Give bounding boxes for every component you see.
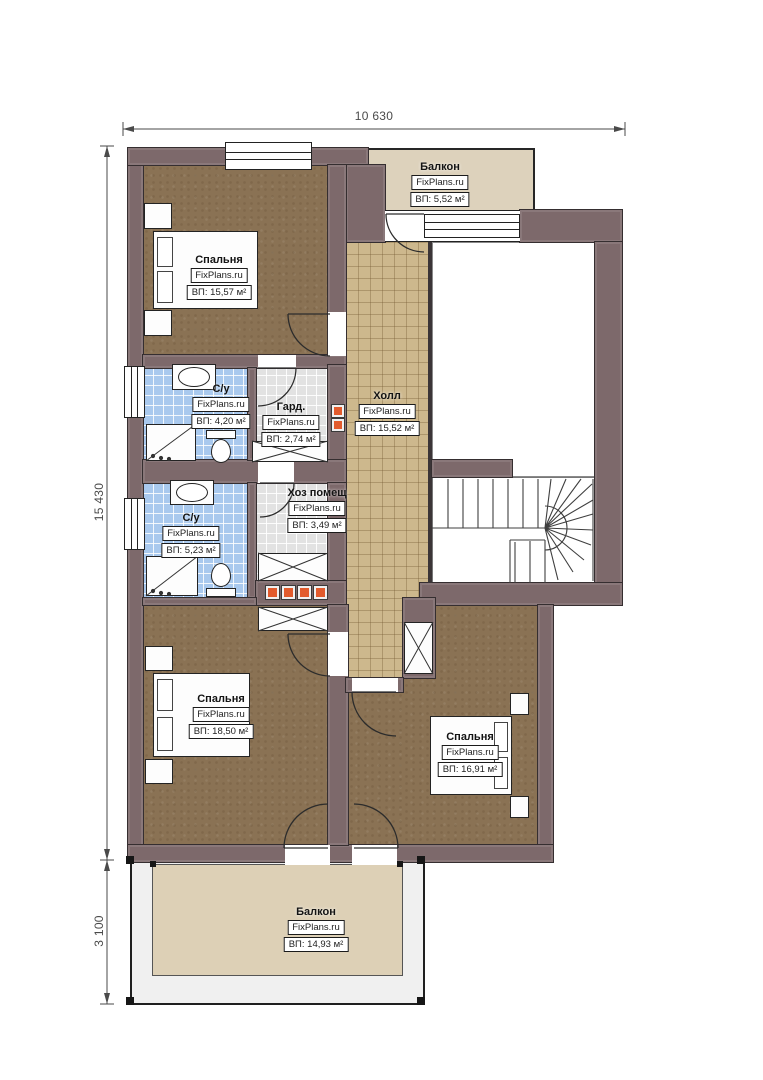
dimension-left-main: 15 430 xyxy=(92,483,106,522)
room-label-balcony-bottom: Балкон FixPlans.ru ВП: 14,93 м² xyxy=(284,906,349,952)
room-label-bathroom-2: С/у FixPlans.ru ВП: 5,23 м² xyxy=(161,512,220,558)
wall-lower-band-left xyxy=(143,598,256,605)
toilet-tank-icon xyxy=(206,588,236,597)
nightstand xyxy=(144,203,172,229)
room-area: ВП: 18,50 м² xyxy=(189,724,254,739)
vent-icon xyxy=(266,586,279,599)
toilet-icon xyxy=(211,439,231,463)
floor-bedroom-bottom-right-ext xyxy=(348,678,405,845)
staircase-area xyxy=(432,477,595,583)
vent-icon xyxy=(282,586,295,599)
pillow xyxy=(157,717,173,751)
room-label-bathroom-1: С/у FixPlans.ru ВП: 4,20 м² xyxy=(191,383,250,429)
nightstand xyxy=(145,759,173,784)
fixplans-watermark: FixPlans.ru xyxy=(441,745,499,760)
room-area: ВП: 3,49 м² xyxy=(287,518,346,533)
room-area: ВП: 4,20 м² xyxy=(191,414,250,429)
room-area: ВП: 5,52 м² xyxy=(410,192,469,207)
room-name: Спальня xyxy=(189,693,254,705)
room-label-balcony-top: Балкон FixPlans.ru ВП: 5,52 м² xyxy=(410,161,469,207)
wall-bedroom-br-right xyxy=(538,605,553,862)
floor-hall-lower xyxy=(346,598,403,678)
door-opening-balcony-right xyxy=(352,845,397,865)
wall-right-exterior xyxy=(595,242,622,605)
room-area: ВП: 16,91 м² xyxy=(438,762,503,777)
dimension-top: 10 630 xyxy=(355,109,394,123)
vent-icon xyxy=(314,586,327,599)
shower-icon xyxy=(146,556,198,596)
door-opening-bedroom-bl xyxy=(328,632,348,676)
room-area: ВП: 14,93 м² xyxy=(284,937,349,952)
room-label-bedroom-bottom-right: Спальня FixPlans.ru ВП: 16,91 м² xyxy=(438,731,503,777)
door-opening-utility xyxy=(258,460,294,483)
door-opening-bedroom-tl xyxy=(328,312,346,356)
fixplans-watermark: FixPlans.ru xyxy=(192,707,250,722)
vent-icon xyxy=(298,586,311,599)
nightstand xyxy=(510,693,529,715)
fixplans-watermark: FixPlans.ru xyxy=(358,404,416,419)
room-name: Хоз помещ xyxy=(287,487,346,499)
balcony-post xyxy=(417,997,425,1005)
door-opening-balcony-left xyxy=(285,845,330,865)
room-name: С/у xyxy=(161,512,220,524)
window-bathroom-1 xyxy=(124,366,145,418)
window-bedroom-top xyxy=(225,142,312,170)
balcony-post xyxy=(417,856,425,864)
floor-plan: Балкон FixPlans.ru ВП: 5,52 м² Спальня F… xyxy=(0,0,763,1080)
wall-bath2-divider xyxy=(248,483,256,598)
room-label-bedroom-top-left: Спальня FixPlans.ru ВП: 15,57 м² xyxy=(187,254,252,300)
fixplans-watermark: FixPlans.ru xyxy=(262,415,320,430)
balcony-post xyxy=(126,997,134,1005)
room-area: ВП: 2,74 м² xyxy=(261,432,320,447)
balcony-post xyxy=(150,861,156,867)
closet xyxy=(258,607,328,631)
room-name: Холл xyxy=(355,390,420,402)
toilet-icon xyxy=(211,563,231,587)
window-hall-top xyxy=(424,214,520,238)
room-label-bedroom-bottom-left: Спальня FixPlans.ru ВП: 18,50 м² xyxy=(189,693,254,739)
nightstand xyxy=(145,646,173,671)
shower-icon xyxy=(146,424,196,461)
sink-bowl-icon xyxy=(176,483,208,502)
wall-hall-top-corner xyxy=(346,165,385,242)
fixplans-watermark: FixPlans.ru xyxy=(411,175,469,190)
vent-icon xyxy=(332,405,344,417)
toilet-tank-icon xyxy=(206,430,236,439)
fixplans-watermark: FixPlans.ru xyxy=(190,268,248,283)
wall-below-stairs xyxy=(420,583,622,605)
room-name: Балкон xyxy=(410,161,469,173)
balcony-post xyxy=(397,861,403,867)
room-name: Гард. xyxy=(261,401,320,413)
void-open-space xyxy=(432,242,595,477)
wall-bottom-exterior xyxy=(128,845,553,862)
vent-icon xyxy=(332,419,344,431)
door-opening-wardrobe xyxy=(258,355,296,368)
room-area: ВП: 5,23 м² xyxy=(161,543,220,558)
closet xyxy=(404,622,433,674)
room-label-hall: Холл FixPlans.ru ВП: 15,52 м² xyxy=(355,390,420,436)
window-bathroom-2 xyxy=(124,498,145,550)
fixplans-watermark: FixPlans.ru xyxy=(287,920,345,935)
pillow xyxy=(157,237,173,267)
room-label-wardrobe: Гард. FixPlans.ru ВП: 2,74 м² xyxy=(261,401,320,447)
fixplans-watermark: FixPlans.ru xyxy=(162,526,220,541)
room-area: ВП: 15,52 м² xyxy=(355,421,420,436)
dimension-left-balcony: 3 100 xyxy=(92,915,106,947)
pillow xyxy=(157,679,173,711)
nightstand xyxy=(144,310,172,336)
wall-top-right-corner xyxy=(520,210,622,242)
nightstand xyxy=(510,796,529,818)
fixplans-watermark: FixPlans.ru xyxy=(288,501,346,516)
closet xyxy=(258,553,328,581)
door-opening-bedroom-br xyxy=(352,678,398,692)
room-label-utility: Хоз помещ FixPlans.ru ВП: 3,49 м² xyxy=(287,487,346,533)
room-name: Спальня xyxy=(187,254,252,266)
fixplans-watermark: FixPlans.ru xyxy=(192,397,250,412)
balcony-post xyxy=(126,856,134,864)
room-name: Спальня xyxy=(438,731,503,743)
room-name: Балкон xyxy=(284,906,349,918)
floor-balcony-bottom xyxy=(152,864,403,976)
wall-void-bottom-piece xyxy=(432,460,512,477)
room-area: ВП: 15,57 м² xyxy=(187,285,252,300)
wall-void-left-thin xyxy=(428,242,432,583)
room-name: С/у xyxy=(191,383,250,395)
pillow xyxy=(157,271,173,303)
